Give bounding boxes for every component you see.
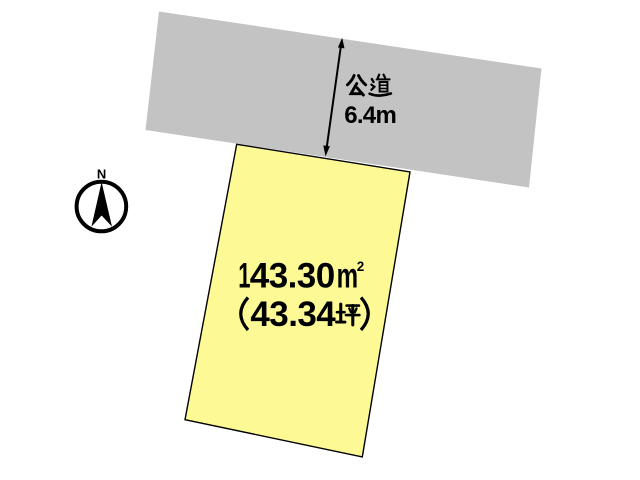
svg-text:2: 2 — [357, 259, 365, 274]
svg-text:N: N — [97, 167, 106, 182]
svg-text:43.34: 43.34 — [250, 295, 336, 334]
svg-text:1: 1 — [238, 258, 250, 296]
svg-text:6.4m: 6.4m — [344, 102, 396, 129]
svg-text:43.30: 43.30 — [250, 257, 335, 296]
svg-text:m: m — [337, 257, 358, 295]
